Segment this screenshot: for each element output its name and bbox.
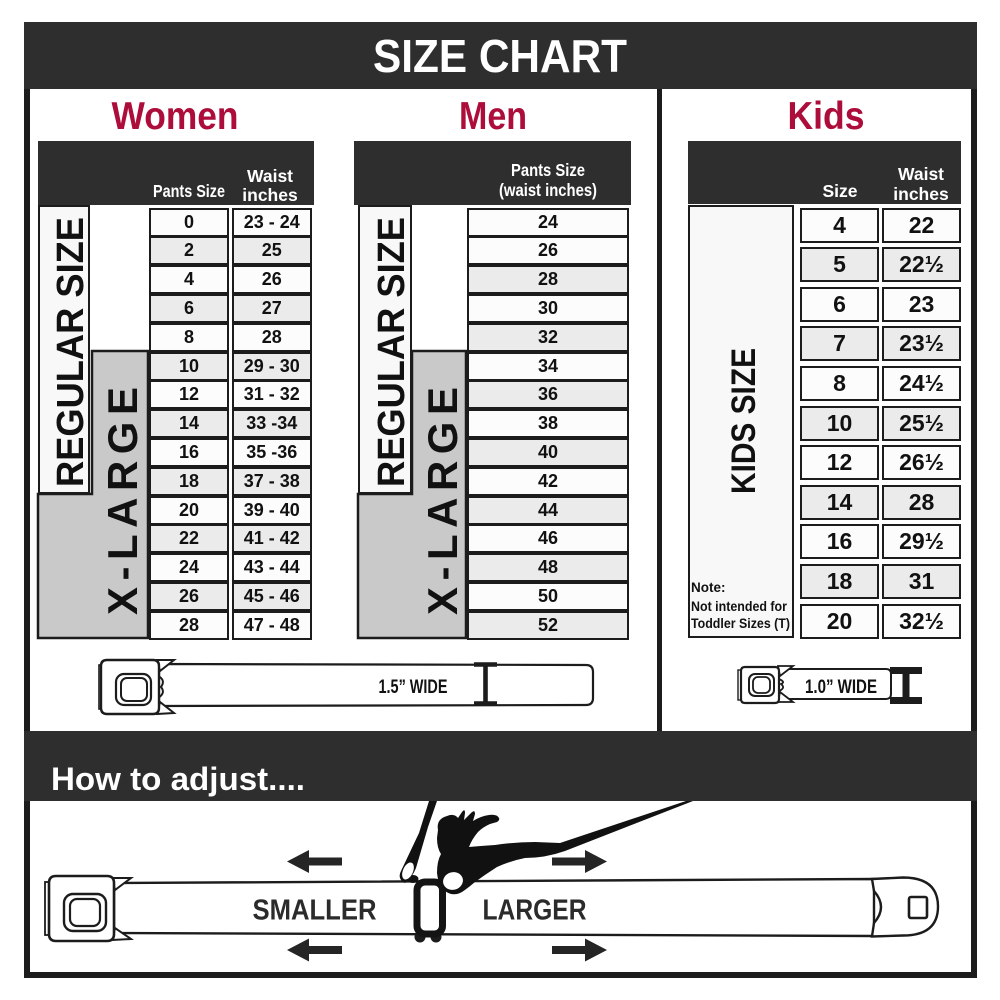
svg-text:Size: Size <box>822 181 857 201</box>
svg-text:SIZE CHART: SIZE CHART <box>373 30 627 82</box>
svg-text:Pants Size: Pants Size <box>511 160 585 180</box>
svg-text:REGULAR SIZE: REGULAR SIZE <box>50 217 92 487</box>
svg-text:KIDS SIZE: KIDS SIZE <box>725 348 763 494</box>
svg-text:1.0” WIDE: 1.0” WIDE <box>805 677 877 698</box>
svg-text:SMALLER: SMALLER <box>253 895 377 927</box>
svg-text:Not intended for: Not intended for <box>691 599 788 614</box>
svg-text:Pants Size: Pants Size <box>153 181 225 201</box>
svg-text:Waist: Waist <box>247 166 293 186</box>
svg-text:How to adjust....: How to adjust.... <box>51 761 305 797</box>
svg-text:inches: inches <box>242 185 298 205</box>
svg-text:REGULAR SIZE: REGULAR SIZE <box>371 217 413 487</box>
svg-text:Men: Men <box>459 95 527 138</box>
svg-text:Waist: Waist <box>898 164 944 184</box>
svg-text:(waist inches): (waist inches) <box>499 180 597 200</box>
svg-text:1.5” WIDE: 1.5” WIDE <box>379 677 448 698</box>
svg-text:Women: Women <box>112 95 239 138</box>
svg-text:LARGER: LARGER <box>483 895 587 927</box>
svg-text:inches: inches <box>893 184 949 204</box>
svg-text:Kids: Kids <box>788 95 865 138</box>
svg-text:Note:: Note: <box>691 580 726 595</box>
svg-text:X-LARGE: X-LARGE <box>99 387 146 615</box>
svg-text:X-LARGE: X-LARGE <box>419 387 466 615</box>
svg-text:Toddler Sizes (T): Toddler Sizes (T) <box>691 616 790 631</box>
